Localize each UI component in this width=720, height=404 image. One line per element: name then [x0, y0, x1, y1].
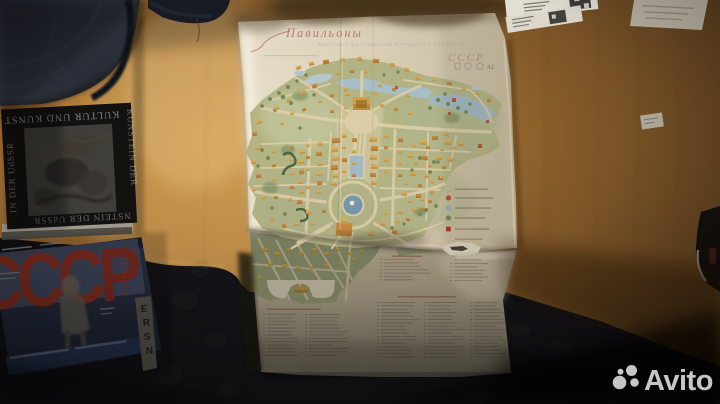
svg-text:Avito: Avito	[644, 365, 713, 397]
